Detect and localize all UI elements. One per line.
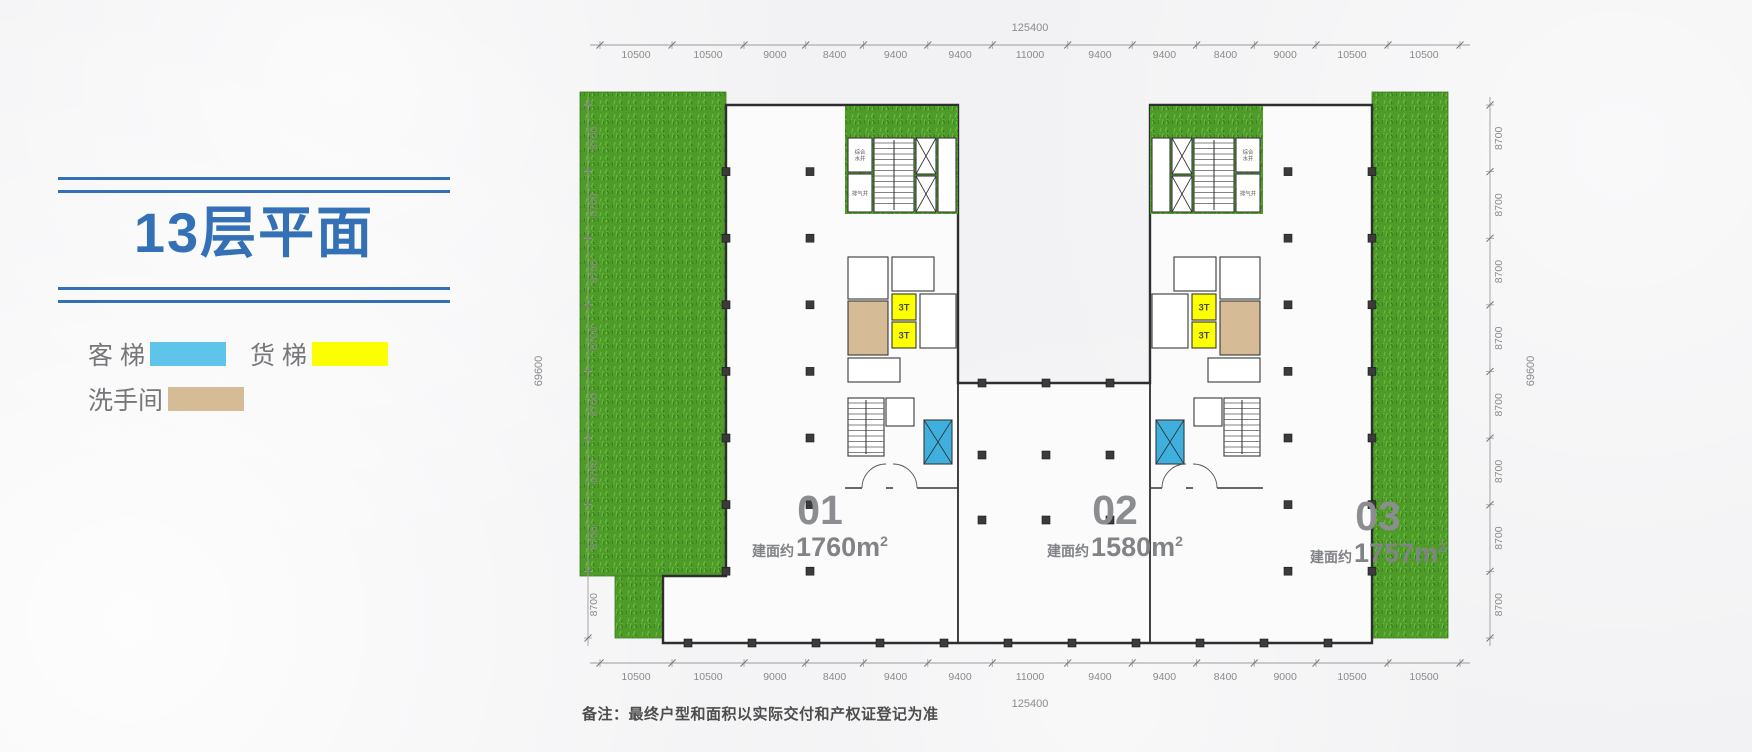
core-room bbox=[938, 138, 956, 212]
core-room bbox=[886, 398, 914, 426]
legend-item-restroom: 洗手间 bbox=[88, 381, 244, 417]
legend-item-freight-elevator: 货 梯 bbox=[250, 336, 388, 372]
dim-label: 8700 bbox=[588, 460, 600, 484]
dim-label: 9400 bbox=[948, 671, 972, 683]
core-room: 3T bbox=[892, 322, 916, 348]
dim-label: 8700 bbox=[1493, 193, 1505, 217]
legend-row-1: 客 梯 货 梯 bbox=[88, 336, 412, 372]
core-room bbox=[920, 294, 956, 348]
core-room: 3T bbox=[1192, 322, 1216, 348]
dim-label: 9400 bbox=[1153, 671, 1177, 683]
core-room bbox=[848, 358, 900, 382]
core-room: 排气井 bbox=[848, 174, 872, 212]
unit-number: 03 bbox=[1278, 496, 1478, 538]
unit-label-01: 01 建面约1760m2 bbox=[720, 490, 920, 563]
dim-label: 8700 bbox=[1493, 593, 1505, 617]
dim-label: 9400 bbox=[948, 49, 972, 61]
core-room bbox=[874, 138, 914, 212]
dim-total-height: 69600 bbox=[533, 356, 545, 387]
core-room bbox=[916, 176, 936, 212]
dim-label: 9400 bbox=[1088, 49, 1112, 61]
dim-label: 8700 bbox=[1493, 126, 1505, 150]
core-room bbox=[924, 420, 952, 464]
dim-label: 8400 bbox=[823, 671, 847, 683]
legend-item-passenger-elevator: 客 梯 bbox=[88, 336, 226, 372]
core-room bbox=[848, 257, 888, 299]
core-room bbox=[1220, 257, 1260, 299]
legend-row-2: 洗手间 bbox=[88, 381, 412, 417]
dim-label: 8700 bbox=[1493, 526, 1505, 550]
unit-area: 建面约1580m2 bbox=[1015, 532, 1215, 563]
legend-label: 洗手间 bbox=[88, 381, 163, 417]
core-room bbox=[1194, 138, 1234, 212]
core-room bbox=[1220, 301, 1260, 355]
core-room bbox=[1224, 398, 1260, 456]
floor-plan-svg: 综合水井排气井3T3T综合水井排气井3T3T 10500105009000840… bbox=[512, 0, 1752, 752]
core-room bbox=[1156, 420, 1184, 464]
dim-total-height: 69600 bbox=[1525, 356, 1537, 387]
dim-label: 8700 bbox=[588, 326, 600, 350]
core-room bbox=[1174, 257, 1216, 291]
vent-shaft-label: 排气井 bbox=[852, 189, 869, 197]
dim-label: 9400 bbox=[884, 671, 908, 683]
core-room bbox=[848, 301, 888, 355]
vent-shaft-label: 排气井 bbox=[1240, 189, 1257, 197]
core-room: 排气井 bbox=[1236, 174, 1260, 212]
dim-label: 8700 bbox=[588, 126, 600, 150]
core-room bbox=[1152, 138, 1170, 212]
dim-label: 9000 bbox=[763, 49, 787, 61]
dim-label: 9400 bbox=[884, 49, 908, 61]
title-rule-top bbox=[58, 177, 450, 193]
core-room bbox=[1172, 138, 1192, 174]
core-room bbox=[892, 257, 934, 291]
dim-label: 8700 bbox=[588, 260, 600, 284]
unit-area: 建面约1757m2 bbox=[1278, 538, 1478, 569]
core-room: 综合水井 bbox=[848, 138, 872, 172]
dim-label: 8700 bbox=[1493, 326, 1505, 350]
water-shaft-label: 综合水井 bbox=[1243, 148, 1254, 162]
dim-label: 10500 bbox=[1337, 671, 1366, 683]
dim-label: 10500 bbox=[693, 671, 722, 683]
dim-label: 10500 bbox=[1409, 49, 1438, 61]
dim-label: 8700 bbox=[588, 526, 600, 550]
dim-label: 9000 bbox=[1273, 49, 1297, 61]
dim-label: 10500 bbox=[1409, 671, 1438, 683]
dim-label: 8400 bbox=[1214, 671, 1238, 683]
water-shaft-label: 综合水井 bbox=[855, 148, 866, 162]
dim-label: 8400 bbox=[823, 49, 847, 61]
core-room: 3T bbox=[892, 294, 916, 320]
core-room bbox=[848, 398, 884, 456]
core-room bbox=[1152, 294, 1188, 348]
dim-label: 8700 bbox=[1493, 260, 1505, 284]
core-room bbox=[916, 138, 936, 174]
core-room bbox=[1194, 398, 1222, 426]
page: 13层平面 客 梯 货 梯 洗手间 bbox=[0, 0, 1752, 752]
dim-label: 8400 bbox=[1214, 49, 1238, 61]
dim-label: 8700 bbox=[588, 393, 600, 417]
dim-label: 10500 bbox=[621, 49, 650, 61]
dim-label: 8700 bbox=[1493, 460, 1505, 484]
dim-label: 9000 bbox=[1273, 671, 1297, 683]
title-rule-bottom bbox=[58, 287, 450, 303]
page-title: 13层平面 bbox=[58, 201, 450, 265]
core-room bbox=[1172, 176, 1192, 212]
dim-label: 11000 bbox=[1016, 49, 1045, 61]
dim-label: 8700 bbox=[588, 193, 600, 217]
dim-label: 9400 bbox=[1088, 671, 1112, 683]
dim-label: 11000 bbox=[1016, 671, 1045, 683]
unit-label-02: 02 建面约1580m2 bbox=[1015, 490, 1215, 563]
freight-capacity-label: 3T bbox=[898, 302, 909, 313]
dim-label: 10500 bbox=[621, 671, 650, 683]
legend-label: 客 梯 bbox=[88, 336, 145, 372]
core-room: 综合水井 bbox=[1236, 138, 1260, 172]
freight-capacity-label: 3T bbox=[1198, 330, 1209, 341]
dim-label: 10500 bbox=[1337, 49, 1366, 61]
unit-number: 02 bbox=[1015, 490, 1215, 532]
dim-label: 9000 bbox=[763, 671, 787, 683]
passenger-elevator-swatch bbox=[150, 342, 226, 366]
dim-label: 10500 bbox=[693, 49, 722, 61]
disclaimer-note: 备注：最终户型和面积以实际交付和产权证登记为准 bbox=[582, 703, 939, 724]
dim-label: 8700 bbox=[588, 593, 600, 617]
core-room: 3T bbox=[1192, 294, 1216, 320]
freight-capacity-label: 3T bbox=[1198, 302, 1209, 313]
unit-number: 01 bbox=[720, 490, 920, 532]
freight-elevator-swatch bbox=[312, 342, 388, 366]
unit-area: 建面约1760m2 bbox=[720, 532, 920, 563]
restroom-swatch bbox=[168, 387, 244, 411]
unit-label-03: 03 建面约1757m2 bbox=[1278, 496, 1478, 569]
core-room bbox=[1208, 358, 1260, 382]
dim-total-width: 125400 bbox=[1012, 22, 1049, 34]
dim-total-width: 125400 bbox=[1012, 698, 1049, 710]
freight-capacity-label: 3T bbox=[898, 330, 909, 341]
dim-label: 8700 bbox=[1493, 393, 1505, 417]
legend-label: 货 梯 bbox=[250, 336, 307, 372]
legend: 客 梯 货 梯 洗手间 bbox=[88, 336, 412, 426]
dim-label: 9400 bbox=[1153, 49, 1177, 61]
